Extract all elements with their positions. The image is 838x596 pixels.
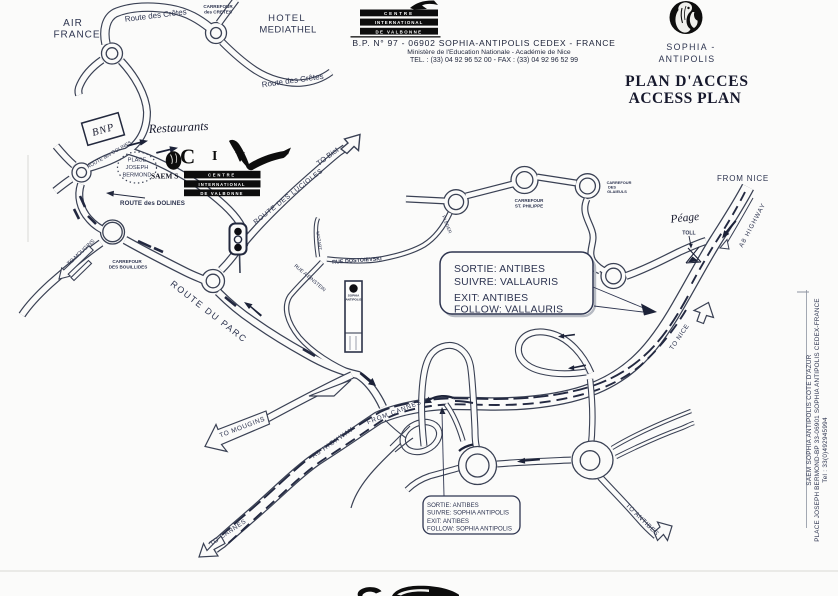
svg-text:CARREFOUR: CARREFOUR bbox=[112, 259, 142, 264]
svg-text:DES BOUILLIDES: DES BOUILLIDES bbox=[109, 265, 148, 270]
svg-text:PLAN D'ACCES: PLAN D'ACCES bbox=[625, 73, 749, 90]
svg-text:CARREFOUR: CARREFOUR bbox=[515, 198, 544, 203]
svg-text:FROM NICE: FROM NICE bbox=[717, 174, 769, 183]
svg-text:DE VALBONNE: DE VALBONNE bbox=[200, 191, 243, 196]
svg-text:ROUTE des DOLINES: ROUTE des DOLINES bbox=[120, 200, 185, 207]
svg-text:ACCESS PLAN: ACCESS PLAN bbox=[629, 90, 742, 107]
svg-text:MEDIATHEL: MEDIATHEL bbox=[259, 25, 316, 36]
svg-text:des CRETES: des CRETES bbox=[204, 10, 232, 15]
svg-text:Ministère de l'Education Natio: Ministère de l'Education Nationale - Aca… bbox=[407, 49, 571, 56]
svg-text:TEL. : (33) 04 92 96 52 00 -: TEL. : (33) 04 92 96 52 00 - FAX : (33) … bbox=[410, 57, 578, 64]
svg-text:SAEM SOPHIA ANTIPOLIS COTE: SAEM SOPHIA ANTIPOLIS COTE D'AZUR bbox=[806, 354, 813, 485]
svg-text:PLACE JOSEPH BERMOND-BP 33-: PLACE JOSEPH BERMOND-BP 33-06901 SOPHIA … bbox=[814, 298, 821, 542]
svg-text:GLAIEULS: GLAIEULS bbox=[607, 189, 627, 194]
svg-text:FOLLOW: SOPHIA ANTIPOLIS: FOLLOW: SOPHIA ANTIPOLIS bbox=[427, 526, 512, 533]
svg-text:I: I bbox=[212, 149, 217, 164]
svg-text:SOPHIA -: SOPHIA - bbox=[666, 42, 715, 52]
svg-text:SUIVRE: SOPHIA ANTIPOLIS: SUIVRE: SOPHIA ANTIPOLIS bbox=[427, 510, 509, 517]
svg-text:SUIVRE: VALLAURIS: SUIVRE: VALLAURIS bbox=[454, 277, 558, 288]
svg-text:SORTIE: ANTIBES: SORTIE: ANTIBES bbox=[454, 264, 545, 275]
svg-text:EXIT: ANTIBES: EXIT: ANTIBES bbox=[427, 518, 469, 525]
svg-text:CARREFOUR: CARREFOUR bbox=[203, 4, 233, 9]
svg-text:CENTRE: CENTRE bbox=[384, 11, 414, 16]
svg-text:ST. PHILIPPE: ST. PHILIPPE bbox=[515, 204, 543, 209]
svg-text:BERMOND: BERMOND bbox=[122, 173, 151, 179]
svg-text:TOLL: TOLL bbox=[682, 231, 696, 237]
svg-text:PLACE: PLACE bbox=[128, 158, 147, 164]
svg-text:B.P. N° 97 - 06902 SOPHI: B.P. N° 97 - 06902 SOPHIA-ANTIPOLIS CEDE… bbox=[352, 38, 615, 48]
svg-text:HOTEL: HOTEL bbox=[268, 13, 306, 24]
svg-text:INTERNATIONAL: INTERNATIONAL bbox=[199, 182, 246, 187]
svg-text:FRANCE: FRANCE bbox=[53, 30, 100, 41]
svg-text:JOSEPH: JOSEPH bbox=[126, 165, 149, 171]
svg-text:INTERNATIONAL: INTERNATIONAL bbox=[375, 20, 424, 25]
svg-text:EXIT: ANTIBES: EXIT: ANTIBES bbox=[454, 293, 528, 304]
svg-text:SORTIE: ANTIBES: SORTIE: ANTIBES bbox=[427, 502, 479, 509]
svg-text:ANTIPOLIS: ANTIPOLIS bbox=[345, 298, 361, 302]
svg-text:DE VALBONNE: DE VALBONNE bbox=[375, 29, 422, 34]
svg-text:FOLLOW: VALLAURIS: FOLLOW: VALLAURIS bbox=[454, 305, 563, 316]
svg-text:C: C bbox=[180, 145, 195, 169]
svg-text:ANTIPOLIS: ANTIPOLIS bbox=[659, 54, 716, 64]
svg-text:CENTRE: CENTRE bbox=[208, 173, 236, 178]
svg-text:Tel : 33(0)492945994: Tel : 33(0)492945994 bbox=[822, 417, 829, 483]
svg-text:SAEM S: SAEM S bbox=[151, 172, 178, 181]
svg-text:AIR: AIR bbox=[63, 18, 83, 29]
